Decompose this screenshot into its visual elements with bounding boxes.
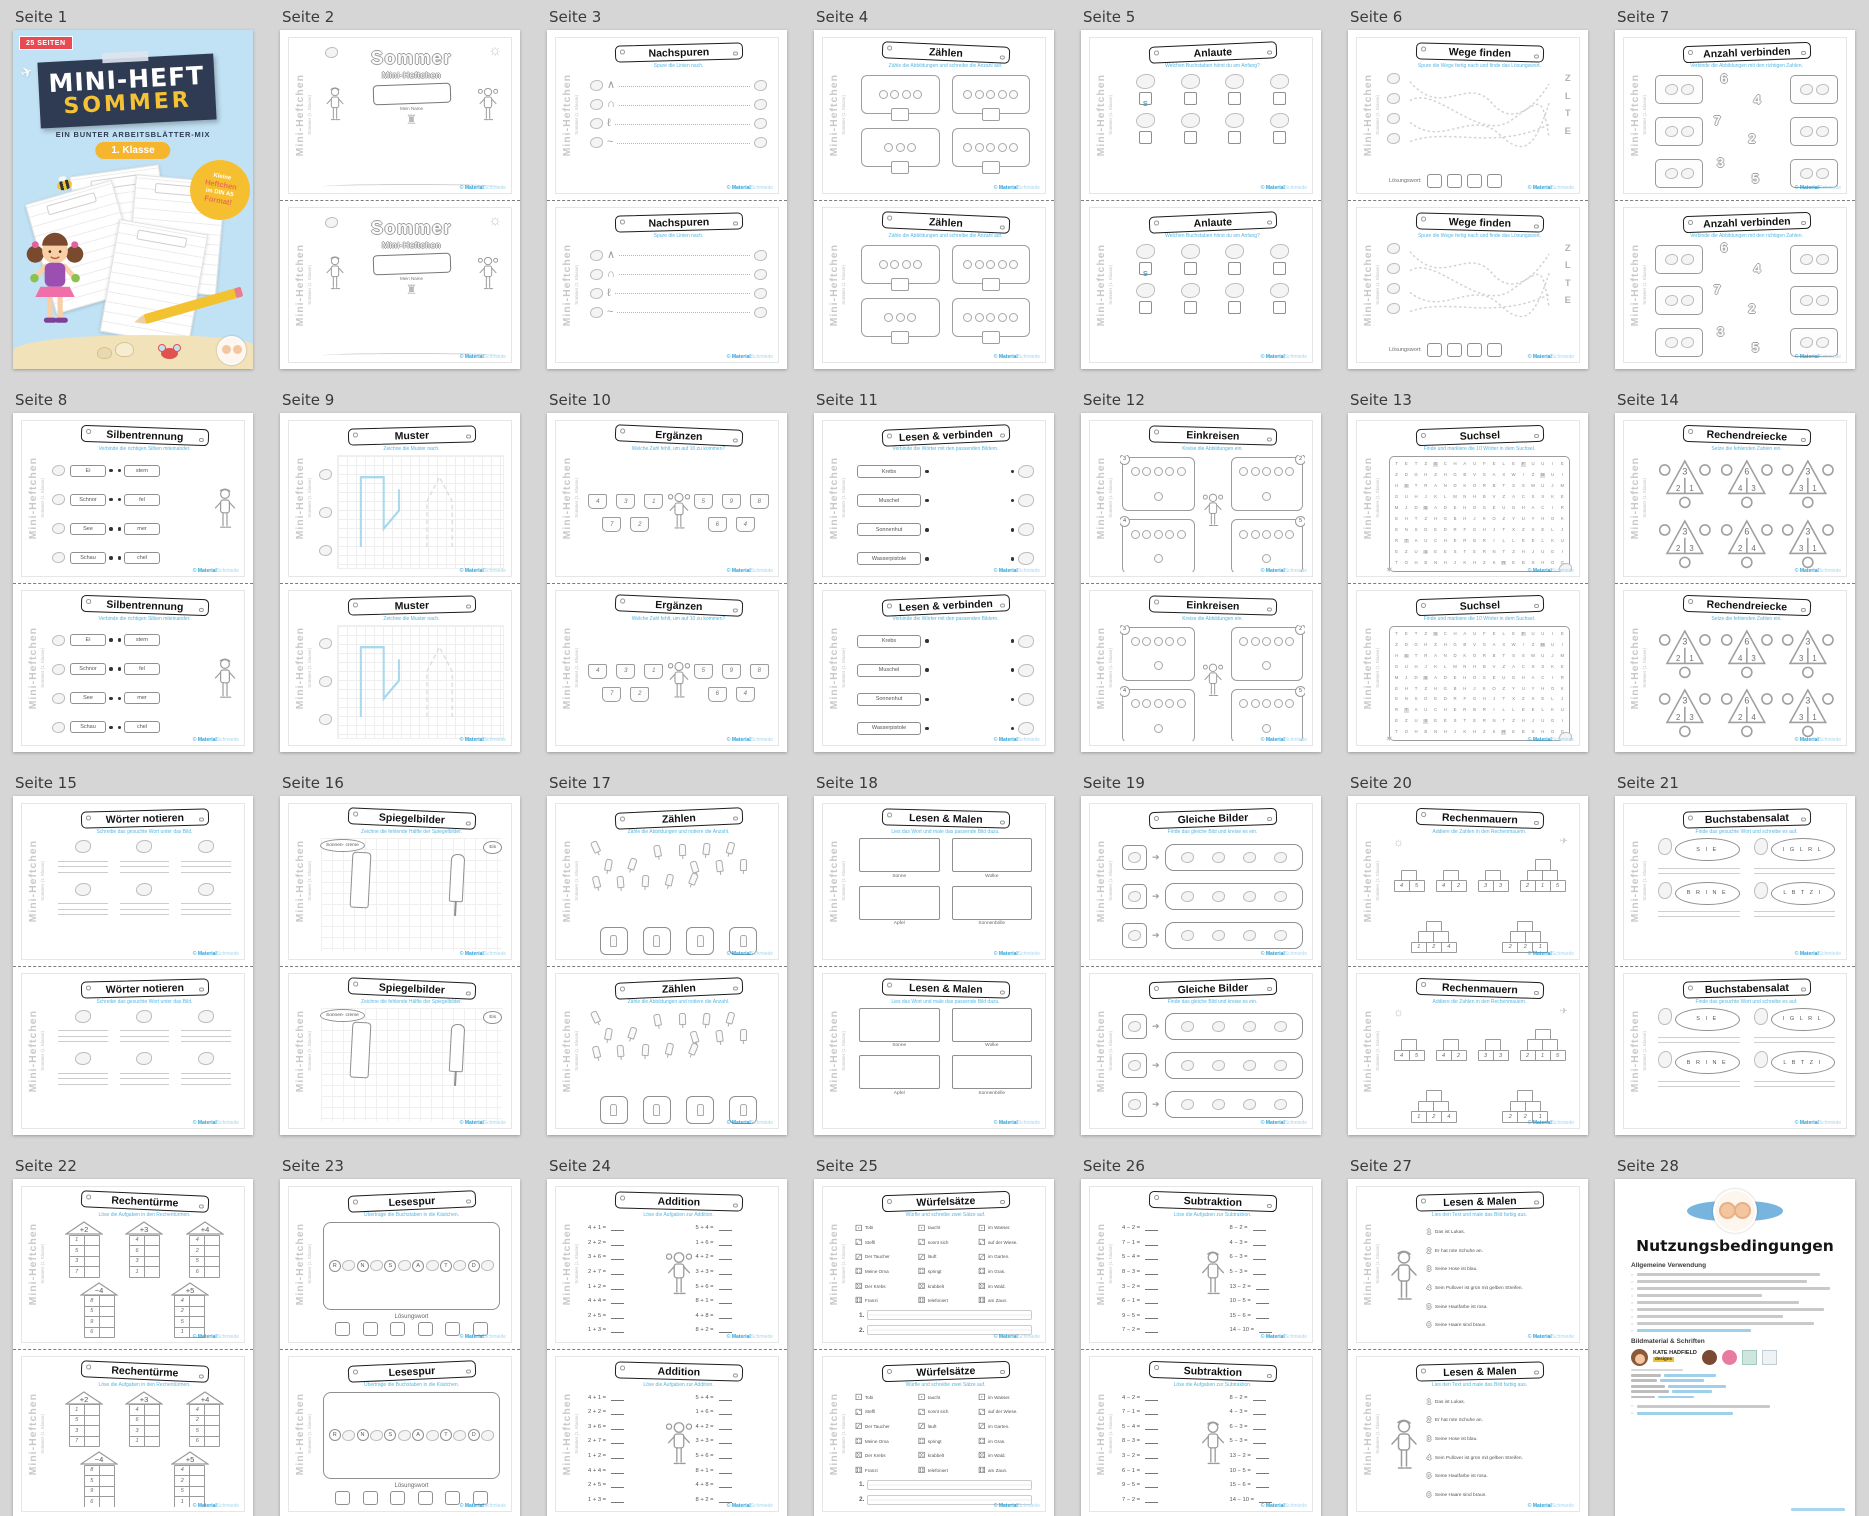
example-letter: S [1143,269,1148,278]
draw-item: Sonnenbrille [952,1055,1033,1096]
worksheet-card: Mini-HeftchenSommer (1. Klasse)AnlauteWe… [1089,207,1313,364]
clue-letter: A [412,1260,424,1272]
letter-bubble: B R I N E [1675,882,1740,905]
materialschmiede-brand: © MaterialSchmiede [1261,1334,1307,1340]
worksheet-content [319,455,504,572]
count-frame [643,927,671,955]
picture-icon [1754,1008,1768,1025]
dice-phrase: ⚃Meine Oma [855,1437,913,1446]
solution-box [390,1491,405,1505]
terms-heading: Nutzungsbedingungen [1631,1237,1839,1255]
beach-item-icon [453,1430,466,1441]
math-triangle: 323 [1658,684,1712,741]
equation: 3 + 3 = [696,1438,770,1444]
sentence-row: 4Sein Pullover ist grün mit gelben Strei… [1427,1455,1570,1462]
page-label: Seite 3 [549,8,787,26]
page-label: Seite 23 [282,1157,520,1175]
worksheet-card: Mini-HeftchenSommer (1. Klasse)Spiegelbi… [288,973,512,1130]
word-write-item [58,840,108,873]
equation: 15 − 6 = [1230,1313,1304,1319]
anlaut-item [1216,74,1255,105]
worksheet-card: Mini-HeftchenSommer (1. Klasse)☼SommerMi… [288,207,512,364]
materialschmiede-brand: © MaterialSchmiede [727,568,773,574]
page-thumbnail[interactable]: Mini-HeftchenSommer (1. Klasse)Wege find… [1348,30,1588,369]
page-thumbnail[interactable]: Mini-HeftchenSommer (1. Klasse)AnlauteWe… [1081,30,1321,369]
page-thumbnail[interactable]: Mini-HeftchenSommer (1. Klasse)Nachspure… [547,30,787,369]
word-label: Apfel [894,921,905,926]
picture-icon [1658,1051,1672,1068]
worksheet-title-plate: Anlaute [1148,41,1276,64]
boy-figure-icon [1200,1421,1226,1472]
picture-box [1790,159,1838,188]
number-wall: 33 [1478,1040,1508,1061]
page-thumbnail-grid: Seite 125 SEITEN✈MINI-HEFTSOMMEREIN BUNT… [0,0,1869,1516]
page-thumbnail[interactable]: Mini-HeftchenSommer (1. Klasse)Rechentür… [13,1179,253,1516]
worksheet-title: Lesen & Malen [1443,1364,1517,1378]
worksheet-card: Mini-HeftchenSommer (1. Klasse)Nachspure… [555,207,779,364]
page-cell: Seite 5Mini-HeftchenSommer (1. Klasse)An… [1081,6,1321,369]
page-thumbnail[interactable]: Mini-HeftchenSommer (1. Klasse)Rechendre… [1615,413,1855,752]
worksheet-title: Subtraktion [1183,1364,1242,1378]
popsicle-icon [627,857,638,871]
writing-line: 1. [859,1310,1032,1320]
sheet-side-text: Mini-HeftchenSommer (1. Klasse) [23,1193,49,1336]
math-triangle: 331 [1781,684,1835,741]
boy-figure-icon [213,488,237,535]
svg-text:3: 3 [1799,544,1803,553]
number-wall: 124 [1411,1091,1456,1123]
cut-line [1081,1349,1321,1350]
worksheet-title-plate: Ergänzen [614,424,742,447]
worksheet-subtitle: Kreise die Abbildungen ein. [1120,616,1305,622]
cut-line [1615,583,1855,584]
bird-icon [325,47,338,58]
mini-booklet-cover: ☼SommerMini-HeftchenMein Name♜ [319,215,504,359]
worksheet-subtitle: Finde das gleiche Bild und kreise es ein… [1120,999,1305,1005]
answer-box [891,278,909,291]
mirror-grid: Sonnen- cremeEis [321,1008,502,1121]
mini-sheet-bottom: Mini-HeftchenSommer (1. Klasse)Gleiche B… [1081,966,1321,1136]
word-box: Wasserpistole [857,552,921,565]
sheet-side-text: Mini-HeftchenSommer (1. Klasse) [557,214,583,357]
popsicle-icon [617,875,625,888]
sheet-side-text: Mini-HeftchenSommer (1. Klasse) [1091,214,1117,357]
equation: 14 − 10 = [1230,1327,1304,1333]
page-label: Seite 17 [549,774,787,792]
dice-phrase: ⚀taucht [918,1224,973,1233]
equation: 8 − 2 = [1230,1225,1304,1231]
boy-figure-icon [1389,1250,1419,1309]
page-label: Seite 2 [282,8,520,26]
worksheet-title-plate: Silbentrennung [80,425,208,446]
sheet-side-text: Mini-HeftchenSommer (1. Klasse) [23,1363,49,1506]
answer-box [649,954,664,955]
girl-figure-icon [668,661,690,704]
equation: 3 + 6 = [588,1254,662,1260]
booklet-cover: 25 SEITEN✈MINI-HEFTSOMMEREIN BUNTER ARBE… [13,30,253,369]
clue-letter: T [440,1260,452,1272]
page-thumbnail[interactable]: Mini-HeftchenSommer (1. Klasse)Gleiche B… [1081,796,1321,1135]
page-cell: Seite 2Mini-HeftchenSommer (1. Klasse)☼S… [280,6,520,369]
terms-bullet [1631,1273,1839,1277]
worksheet-content: EiSchnorSeeSchausternfelmerchel [52,455,237,572]
drawing-box [952,1008,1033,1042]
picture-icon [754,288,767,299]
materialschmiede-brand: © MaterialSchmiede [1795,185,1841,191]
picture-icon [136,840,152,853]
sheet-side-text: Mini-HeftchenSommer (1. Klasse) [1358,810,1384,953]
worksheet-content: ZLTELösungswort: [1387,72,1572,189]
equation: 8 + 2 = [696,1497,770,1503]
page-label: Seite 7 [1617,8,1855,26]
die-4-icon: ⚃ [855,1437,862,1446]
equation: 8 + 1 = [696,1298,770,1304]
page-thumbnail[interactable]: Mini-HeftchenSommer (1. Klasse)Einkreise… [1081,413,1321,752]
cut-line [1348,1349,1588,1350]
worksheet-title-plate: Lesespur [347,1190,475,1213]
worksheet-title: Silbentrennung [106,428,183,443]
svg-text:3: 3 [1799,713,1803,722]
starfish-icon: ✶ [1387,734,1393,741]
worksheet-subtitle: Zeichne die fehlende Hälfte der Spiegelb… [319,829,504,835]
terms-bullet [1631,1294,1839,1298]
mini-sheet-bottom: Mini-HeftchenSommer (1. Klasse)Silbentre… [13,583,253,753]
terms-bullet [1631,1280,1839,1284]
materialschmiede-brand: © MaterialSchmiede [193,568,239,574]
mini-sheet-bottom: Mini-HeftchenSommer (1. Klasse)Rechentür… [13,1349,253,1516]
picture-icon [1018,523,1034,536]
page-thumbnail[interactable]: Mini-HeftchenSommer (1. Klasse)Subtrakti… [1081,1179,1321,1516]
worksheet-content: 1Das ist Lukas.2Er hat rote Schuhe an.3S… [1387,1391,1572,1508]
materialschmiede-brand: © MaterialSchmiede [460,1334,506,1340]
cut-line [547,1349,787,1350]
animal-icon [1387,303,1400,314]
page-thumbnail[interactable]: Mini-HeftchenSommer (1. Klasse)Lesen & M… [1348,1179,1588,1516]
worksheet-subtitle: Finde das gleiche Bild und kreise es ein… [1120,829,1305,835]
solution-box [1467,343,1482,357]
picture-icon [136,1052,152,1065]
number-wall: 124 [1411,921,1456,953]
dice-phrase: ⚅telefoniert [918,1296,973,1305]
worksheet-card: Mini-HeftchenSommer (1. Klasse)ZählenZäh… [822,207,1046,364]
worksheet-subtitle: Spure die Linien nach. [586,233,771,239]
sun-icon: ☼ [1393,1008,1404,1019]
worksheet-card: Mini-HeftchenSommer (1. Klasse)SuchselFi… [1356,420,1580,577]
answer-box [606,1123,621,1124]
page-cell: Seite 13Mini-HeftchenSommer (1. Klasse)S… [1348,389,1588,752]
page-thumbnail[interactable]: Mini-HeftchenSommer (1. Klasse)Spiegelbi… [280,796,520,1135]
popsicle-icon [739,859,746,871]
sheet-side-text: Mini-HeftchenSommer (1. Klasse) [1091,1363,1117,1506]
syllable-box: fel [124,494,160,506]
page-label: Seite 19 [1083,774,1321,792]
maze-letter: T [1565,278,1571,289]
page-thumbnail[interactable]: Mini-HeftchenSommer (1. Klasse)Anzahl ve… [1615,30,1855,369]
die-1-icon: ⚀ [855,1393,862,1402]
page-label: Seite 28 [1617,1157,1855,1175]
svg-text:+2: +2 [80,1225,89,1234]
count-box [861,245,940,284]
number-wall: 42 [1436,870,1466,891]
maze-letter: E [1565,295,1571,306]
equation: 5 − 4 = [1122,1424,1196,1430]
sheet-side-text: Mini-HeftchenSommer (1. Klasse) [557,427,583,570]
page-thumbnail[interactable]: Mini-HeftchenSommer (1. Klasse)Lesen & M… [814,796,1054,1135]
dice-phrase: ⚂läuft [918,1422,973,1431]
worksheet-subtitle: Zeichne die fehlende Hälfte der Spiegelb… [319,999,504,1005]
sheet-side-text: Mini-HeftchenSommer (1. Klasse) [1091,980,1117,1123]
worksheet-subtitle: Addiere die Zahlen in den Rechenmauern. [1387,829,1572,835]
equation: 1 + 2 = [588,1453,662,1459]
solution-box [1487,174,1502,188]
worksheet-content: ⚀Tobi⚀taucht⚀im Wasser.⚁Steffi⚁sonnt sic… [853,1221,1038,1338]
word-write-item [58,1052,108,1085]
worksheet-title: Rechenmauern [1441,811,1517,826]
math-triangle: 643 [1720,455,1774,512]
page-label: Seite 8 [15,391,253,409]
bird-icon [325,217,338,228]
picture-scene: RNSATD [323,1222,500,1310]
worksheet-card: Mini-HeftchenSommer (1. Klasse)Lesen & M… [822,803,1046,960]
picture-box [1655,245,1703,274]
worksheet-card: Mini-HeftchenSommer (1. Klasse)Wege find… [1356,37,1580,194]
dice-phrase: ⚂läuft [918,1253,973,1262]
worksheet-card: Mini-HeftchenSommer (1. Klasse)Subtrakti… [1089,1186,1313,1343]
page-label: Seite 14 [1617,391,1855,409]
picture-icon [136,1010,152,1023]
worksheet-title: Silbentrennung [106,598,183,613]
dice-phrase: ⚃springt [918,1437,973,1446]
svg-text:2: 2 [1676,654,1680,663]
sheet-side-text: Mini-HeftchenSommer (1. Klasse) [1358,1193,1384,1336]
materialschmiede-brand: © MaterialSchmiede [193,1503,239,1509]
die-6-icon: ⚅ [978,1296,985,1305]
page-cell: Seite 125 SEITEN✈MINI-HEFTSOMMEREIN BUNT… [13,6,253,369]
worksheet-card: Mini-HeftchenSommer (1. Klasse)Nachspure… [555,37,779,194]
logo-icon [1742,1350,1757,1365]
mini-sheet-bottom: Mini-HeftchenSommer (1. Klasse)ErgänzenW… [547,583,787,753]
trace-row: ~ [590,307,767,318]
materialschmiede-brand: © MaterialSchmiede [727,1503,773,1509]
maze-letter: Z [1565,243,1571,254]
worksheet-content: 4317259864 [586,625,771,742]
cut-line [547,583,787,584]
worksheet-card: Mini-HeftchenSommer (1. Klasse)Rechentür… [21,1356,245,1513]
clue-letter: D [468,1429,480,1441]
equation: 4 + 1 = [588,1395,662,1401]
picture-icon [1018,635,1034,648]
page-thumbnail[interactable]: Mini-HeftchenSommer (1. Klasse)ZählenZäh… [814,30,1054,369]
worksheet-title: Spiegelbilder [378,811,444,826]
cut-line [1615,200,1855,201]
worksheet-subtitle: Verbinde die richtigen Silben miteinande… [52,446,237,452]
sheet-side-text: Mini-HeftchenSommer (1. Klasse) [824,214,850,357]
worksheet-subtitle: Spure die Wege fertig nach und finde das… [1387,63,1572,69]
page-thumbnail[interactable]: Mini-HeftchenSommer (1. Klasse)MusterZei… [280,413,520,752]
worksheet-title: Anlaute [1193,215,1232,229]
letter-salad-item: L B T Z I [1754,882,1836,918]
worksheet-title: Einkreisen [1186,598,1239,611]
mini-sheet-top: Mini-HeftchenSommer (1. Klasse)☼SommerMi… [280,30,520,200]
number-wall: 45 [1394,870,1424,891]
worksheet-content: 647235 [1654,242,1839,359]
worksheet-content: RNSATDLösungswort [319,1391,504,1508]
answer-box [982,278,1000,291]
credits-logos: KATE HADFIELDdesigns [1631,1349,1839,1366]
equation: 7 − 2 = [1122,1327,1196,1333]
writing-line: 1. [859,1480,1032,1490]
worksheet-content: 647235 [1654,72,1839,189]
cut-line [547,966,787,967]
worksheet-content: ⚀Tobi⚀taucht⚀im Wasser.⚁Steffi⚁sonnt sic… [853,1391,1038,1508]
credit-line [1631,1374,1839,1377]
answer-box [982,331,1000,344]
bucket-icon: 9 [722,664,741,679]
math-tower: +44256 [178,1221,232,1277]
svg-text:+5: +5 [185,1455,194,1464]
page-thumbnail[interactable]: Mini-HeftchenSommer (1. Klasse)AdditionL… [547,1179,787,1516]
dice-phrase: ⚀Tobi [855,1393,913,1402]
dice-phrase: ⚂im Garten. [978,1253,1036,1262]
bucket-icon: 8 [750,664,769,679]
svg-text:4: 4 [1738,484,1743,493]
page-thumbnail[interactable]: Mini-HeftchenSommer (1. Klasse)Rechenmau… [1348,796,1588,1135]
math-triangle: 331 [1781,455,1835,512]
trace-row: ∧ [590,250,767,261]
cut-line [1081,966,1321,967]
solution-box [1467,174,1482,188]
page-thumbnail[interactable]: Mini-HeftchenSommer (1. Klasse)LesespurÜ… [280,1179,520,1516]
svg-text:3: 3 [1682,526,1687,536]
worksheet-title-plate: Lesen & verbinden [881,594,1009,617]
page-thumbnail[interactable]: Mini-HeftchenSommer (1. Klasse)SuchselFi… [1348,413,1588,752]
dice-phrase: ⚁sonnt sich [918,1408,973,1417]
die-1-icon: ⚀ [978,1224,985,1233]
page-thumbnail[interactable]: Mini-HeftchenSommer (1. Klasse)Buchstabe… [1615,796,1855,1135]
mini-sheet-top: Mini-HeftchenSommer (1. Klasse)SuchselFi… [1348,413,1588,583]
drawing-box [952,838,1033,872]
worksheet-subtitle: Löse die Aufgaben zur Addition. [586,1382,771,1388]
beach-item-icon [342,1260,355,1271]
drawing-box [859,838,940,872]
sheet-side-text: Mini-HeftchenSommer (1. Klasse) [557,44,583,187]
worksheet-card: Mini-HeftchenSommer (1. Klasse)ZählenZäh… [822,37,1046,194]
worksheet-card: Mini-HeftchenSommer (1. Klasse)Gleiche B… [1089,973,1313,1130]
number-wall: 215 [1520,1029,1565,1061]
svg-text:1: 1 [1813,544,1817,553]
word-write-item [181,1010,231,1043]
mini-sheet-bottom: Mini-HeftchenSommer (1. Klasse)ZählenZäh… [547,966,787,1136]
sandcastle-icon: ♜ [406,283,418,296]
arrow-icon: ➔ [1152,930,1160,941]
worksheet-card: Mini-HeftchenSommer (1. Klasse)Spiegelbi… [288,803,512,960]
match-row: ➔ [1122,1052,1303,1079]
boy-figure-icon [325,256,345,295]
worksheet-title-plate: Addition [614,1191,742,1211]
equation: 4 + 4 = [588,1468,662,1474]
materialschmiede-brand: © MaterialSchmiede [1261,354,1307,360]
page-cell: Seite 17Mini-HeftchenSommer (1. Klasse)Z… [547,772,787,1135]
equation: 4 − 3 = [1230,1240,1304,1246]
cut-line [280,966,520,967]
page-thumbnail[interactable]: Mini-HeftchenSommer (1. Klasse)ZählenZäh… [547,796,787,1135]
equation: 8 − 2 = [1230,1395,1304,1401]
drawing-box [859,1008,940,1042]
page-thumbnail[interactable]: Mini-HeftchenSommer (1. Klasse)Silbentre… [13,413,253,752]
picture-scene: RNSATD [323,1392,500,1480]
worksheet-title-plate: Ergänzen [614,594,742,617]
equation: 4 + 4 = [588,1298,662,1304]
sun-icon: ☼ [1393,838,1404,849]
page-thumbnail[interactable]: Mini-HeftchenSommer (1. Klasse)☼SommerMi… [280,30,520,369]
sheet-side-text: Mini-HeftchenSommer (1. Klasse) [290,980,316,1123]
picture-icon [1018,664,1034,677]
die-2-icon: ⚁ [855,1238,862,1247]
page-thumbnail[interactable]: NutzungsbedingungenAllgemeine Verwendung… [1615,1179,1855,1516]
bucket-icon: 7 [602,517,621,532]
bucket-icon: 6 [708,517,727,532]
cut-line [814,583,1054,584]
worksheet-title-plate: Lesen & Malen [881,808,1009,828]
popsicle-icon [715,860,724,873]
page-thumbnail[interactable]: Mini-HeftchenSommer (1. Klasse)Wörter no… [13,796,253,1135]
page-thumbnail[interactable]: Mini-HeftchenSommer (1. Klasse)ErgänzenW… [547,413,787,752]
page-thumbnail[interactable]: Mini-HeftchenSommer (1. Klasse)Lesen & v… [814,413,1054,752]
page-cell: Seite 28NutzungsbedingungenAllgemeine Ve… [1615,1155,1855,1516]
page-label: Seite 6 [1350,8,1588,26]
boy-figure-icon [213,658,237,705]
page-thumbnail[interactable]: Mini-HeftchenSommer (1. Klasse)Würfelsät… [814,1179,1054,1516]
sunscreen-outline [350,1021,372,1078]
trace-row: ∩ [590,99,767,110]
answer-box [649,1123,664,1124]
picture-icon [754,137,767,148]
sheet-side-text: Mini-HeftchenSommer (1. Klasse) [290,214,316,357]
worksheet-title-plate: Rechenmauern [1415,808,1543,829]
dice-phrase: ⚄krabbelt [918,1282,973,1291]
page-thumbnail[interactable]: 25 SEITEN✈MINI-HEFTSOMMEREIN BUNTER ARBE… [13,30,253,369]
worksheet-subtitle: Verbinde die Wörter mit den passenden Bi… [853,446,1038,452]
dice-phrase: ⚁auf der Wiese. [978,1408,1036,1417]
equation: 7 − 1 = [1122,1240,1196,1246]
die-3-icon: ⚂ [918,1253,925,1262]
page-label: Seite 21 [1617,774,1855,792]
worksheet-card: Mini-HeftchenSommer (1. Klasse)Rechenmau… [1356,803,1580,960]
sheet-side-text: Mini-HeftchenSommer (1. Klasse) [23,810,49,953]
worksheet-title: Würfelsätze [916,1194,975,1208]
mini-sheet-bottom: Mini-HeftchenSommer (1. Klasse)Rechendre… [1615,583,1855,753]
svg-text:1: 1 [1689,484,1693,493]
svg-text:+3: +3 [140,1395,149,1404]
worksheet-title-plate: Gleiche Bilder [1148,977,1276,998]
worksheet-title-plate: Muster [347,425,475,445]
dice-phrase: ⚅Franzi [855,1296,913,1305]
equation: 8 − 3 = [1122,1269,1196,1275]
cut-line [814,1349,1054,1350]
pattern-grid [337,455,504,569]
shell-icon [97,347,112,359]
equation: 4 + 8 = [696,1482,770,1488]
dice-phrase: ⚀im Wasser. [978,1224,1036,1233]
circle-box: 4 [1122,689,1195,741]
die-1-icon: ⚀ [978,1393,985,1402]
die-2-icon: ⚁ [918,1238,925,1247]
anlaut-item [1216,113,1255,144]
equation: 1 + 6 = [696,1240,770,1246]
popsicle-icon [739,1029,746,1041]
die-1-icon: ⚀ [855,1224,862,1233]
materialschmiede-brand: © MaterialSchmiede [1261,951,1307,957]
